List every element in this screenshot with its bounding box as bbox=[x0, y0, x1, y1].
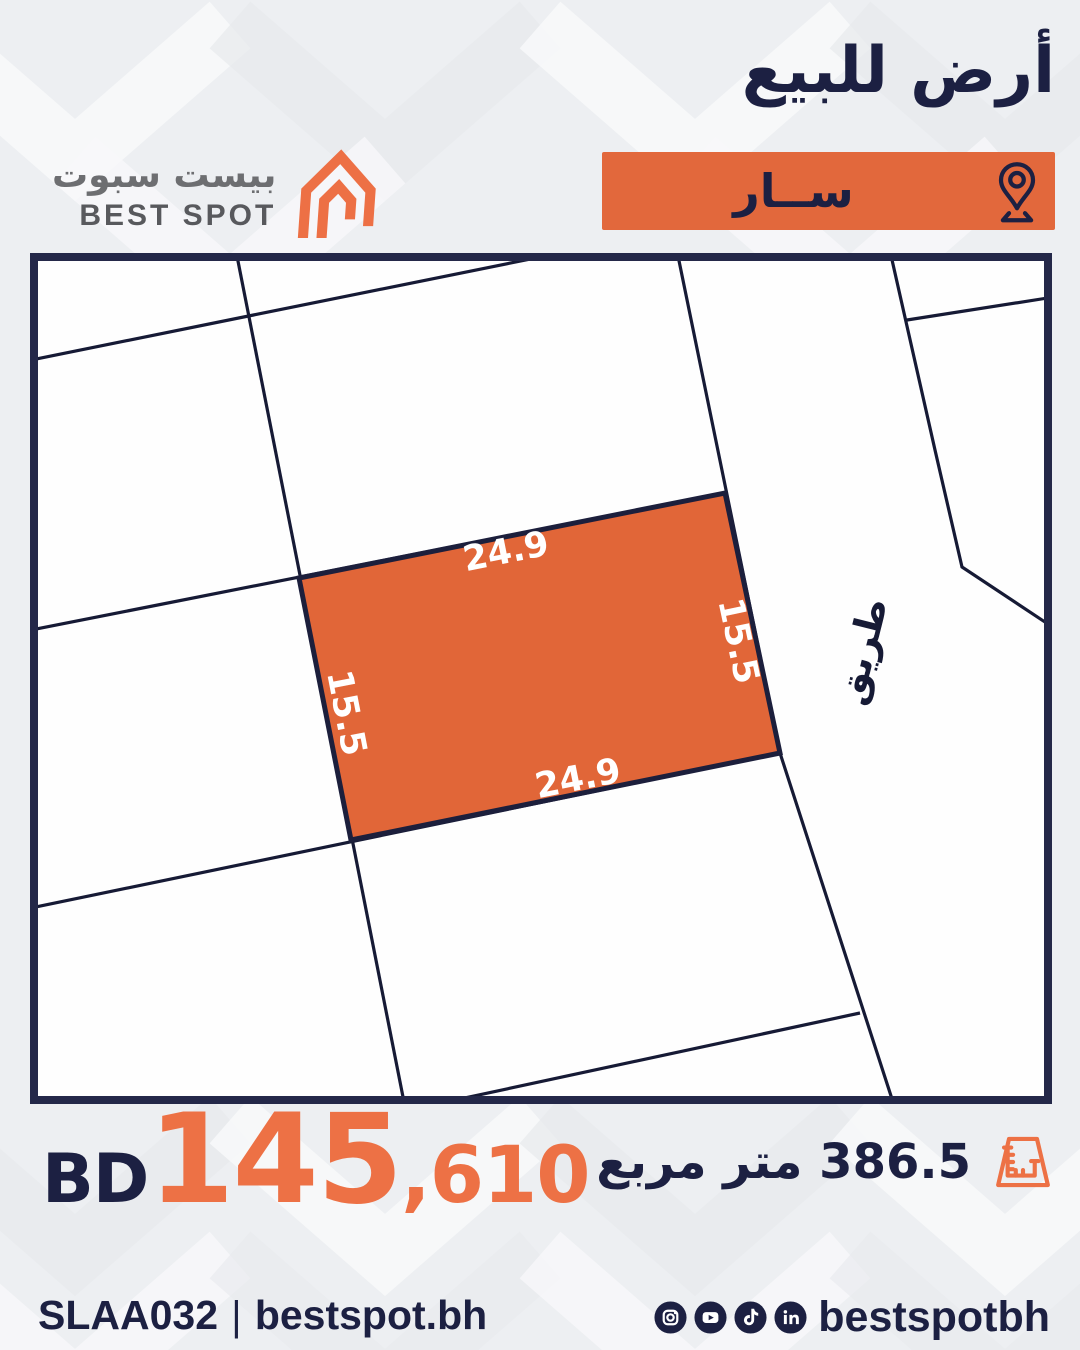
parcel-line bbox=[38, 261, 570, 361]
brand-name-arabic: بيست سبوت bbox=[52, 155, 276, 196]
location-name: ســار bbox=[602, 152, 985, 230]
area-icon bbox=[993, 1134, 1053, 1190]
parcel-line bbox=[446, 1013, 860, 1096]
parcel-map: 24.9 15.5 15.5 24.9 طريق bbox=[30, 253, 1052, 1104]
tiktok-icon bbox=[734, 1301, 767, 1334]
brand-mark-icon bbox=[289, 146, 377, 242]
parcel-line bbox=[907, 297, 1044, 320]
road-right-boundary bbox=[890, 261, 1044, 628]
youtube-icon bbox=[694, 1301, 727, 1334]
instagram-icon bbox=[654, 1301, 687, 1334]
area-text: 386.5 متر مربع bbox=[596, 1134, 971, 1190]
price: BD145,610 bbox=[42, 1098, 590, 1222]
brand-logo: بيست سبوت BEST SPOT bbox=[52, 146, 377, 242]
footer-social: bestspotbh bbox=[654, 1296, 1050, 1339]
page-title: أرض للبيع bbox=[742, 30, 1055, 113]
poster: { "header": { "title": "أرض للبيع", "ban… bbox=[0, 0, 1080, 1350]
website: bestspot.bh bbox=[255, 1292, 487, 1339]
location-pin-icon bbox=[993, 160, 1041, 224]
area-info: 386.5 متر مربع bbox=[596, 1134, 1053, 1190]
currency-label: BD bbox=[42, 1146, 148, 1214]
price-amount-main: 145 bbox=[148, 1098, 401, 1222]
location-banner: ســار bbox=[602, 152, 1055, 230]
brand-name-english: BEST SPOT bbox=[79, 199, 276, 234]
road-label: طريق bbox=[828, 593, 897, 708]
separator: | bbox=[230, 1294, 243, 1338]
social-handle: bestspotbh bbox=[818, 1296, 1050, 1339]
reference-code: SLAA032 bbox=[38, 1292, 218, 1339]
linkedin-icon bbox=[774, 1301, 807, 1334]
footer-reference: SLAA032 | bestspot.bh bbox=[38, 1292, 487, 1339]
price-amount-rest: ,610 bbox=[401, 1137, 589, 1215]
